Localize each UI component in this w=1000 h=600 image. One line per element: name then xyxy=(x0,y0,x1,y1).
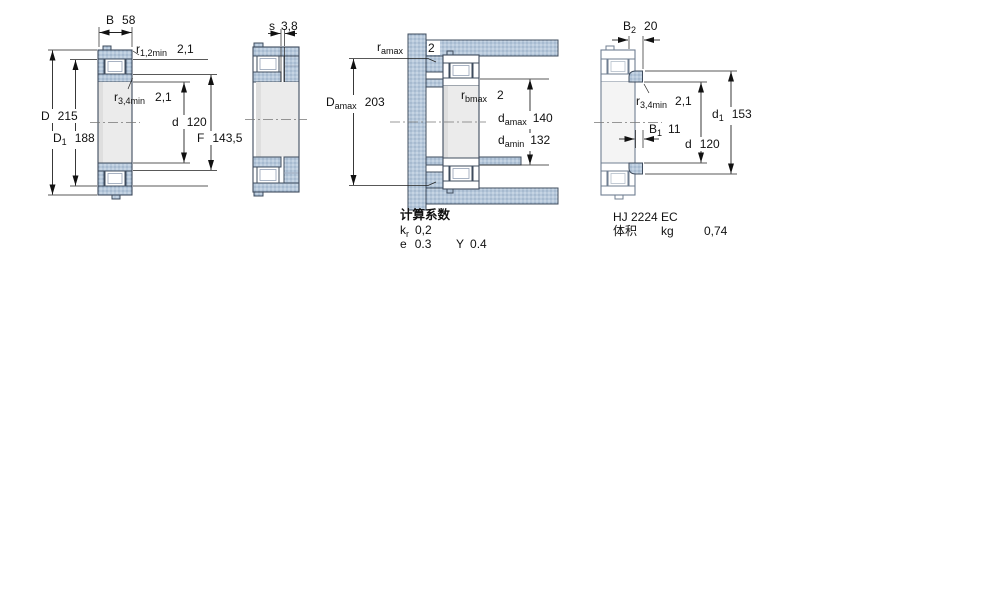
mass-value: 0,74 xyxy=(704,224,727,238)
bearing-diagram-canvas: .h{fill:url(#hp);stroke:#3f4c5e;stroke-w… xyxy=(0,0,1000,600)
mass-unit: kg xyxy=(661,224,674,238)
dim-r34min-hj-label: r3,4min2,1 xyxy=(636,94,692,112)
calc-e-row: e0.3 xyxy=(400,237,431,251)
dim-B2-label: B220 xyxy=(623,19,657,37)
dim-B-label: B58 xyxy=(106,13,135,27)
calc-factors-title: 计算系数 xyxy=(400,208,450,222)
mass-label: 体积 xyxy=(613,224,637,238)
dim-s-label: s3,8 xyxy=(269,19,298,33)
dim-rbmax-label: rbmax2 xyxy=(461,88,504,106)
dim-r12min-label: r1,2min2,1 xyxy=(136,42,194,60)
hj-designation: HJ 2224 EC xyxy=(613,210,678,224)
dim-r34min-label: r3,4min2,1 xyxy=(114,90,172,108)
view2-bearing-hj-section xyxy=(245,43,307,196)
dim-d-hj-label: d120 xyxy=(684,137,721,151)
dim-D1-label: D1188 xyxy=(52,131,96,149)
dim-d1-label: d1153 xyxy=(711,107,753,125)
dim-Damax-label: Damax203 xyxy=(325,95,386,113)
dim-ramax-value: 2 xyxy=(428,41,435,55)
dim-F-label: F143,5 xyxy=(196,131,243,145)
dim-D-label: D215 xyxy=(40,109,79,123)
dim-d-label: d120 xyxy=(171,115,208,129)
dim-damin-label: damin132 xyxy=(497,133,551,151)
calc-Y-row: Y0.4 xyxy=(456,237,487,251)
dim-B1-label: B111 xyxy=(649,122,681,140)
view1-bearing-section xyxy=(90,46,140,199)
dim-damax-label: damax140 xyxy=(497,111,554,129)
dim-ramax-label: ramax xyxy=(377,40,403,58)
